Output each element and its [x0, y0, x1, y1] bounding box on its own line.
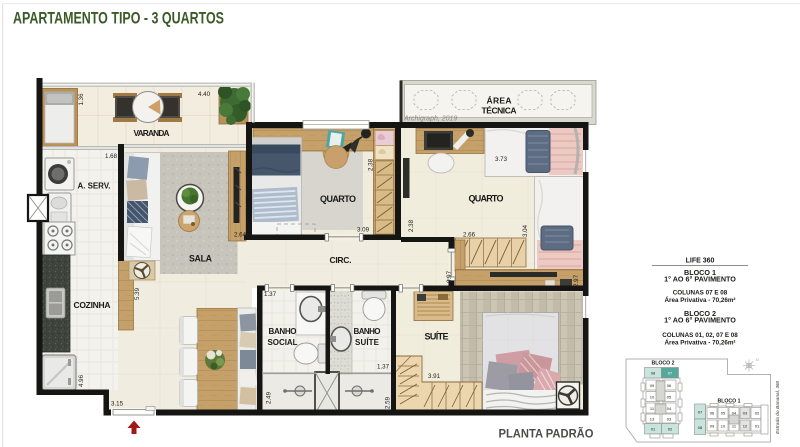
- svg-text:06: 06: [710, 411, 715, 416]
- svg-text:04: 04: [732, 411, 737, 416]
- svg-text:3.73: 3.73: [495, 156, 508, 163]
- svg-text:08: 08: [698, 425, 703, 430]
- svg-text:07: 07: [668, 371, 673, 376]
- svg-text:SUÍTE: SUÍTE: [425, 332, 449, 342]
- svg-text:N: N: [756, 358, 759, 362]
- svg-text:LIFE 360: LIFE 360: [686, 258, 715, 265]
- svg-text:3.15: 3.15: [111, 401, 124, 408]
- svg-text:01: 01: [651, 427, 656, 432]
- svg-text:13: 13: [650, 417, 655, 422]
- svg-text:5.39: 5.39: [134, 287, 141, 300]
- svg-text:2.64: 2.64: [234, 232, 247, 239]
- svg-text:1° AO 6° PAVIMENTO: 1° AO 6° PAVIMENTO: [664, 316, 736, 325]
- svg-text:04: 04: [667, 406, 672, 411]
- svg-text:SALA: SALA: [189, 254, 213, 264]
- svg-text:2.49: 2.49: [266, 391, 273, 404]
- svg-text:QUARTO: QUARTO: [469, 194, 504, 204]
- svg-text:ÁREA: ÁREA: [487, 96, 512, 106]
- svg-text:PLANTA PADRÃO: PLANTA PADRÃO: [499, 427, 594, 441]
- svg-text:Archigraph, 2019: Archigraph, 2019: [403, 116, 457, 123]
- svg-text:12: 12: [743, 424, 748, 429]
- svg-text:2.38: 2.38: [408, 219, 415, 232]
- svg-text:1.37: 1.37: [377, 364, 390, 371]
- svg-text:VARANDA: VARANDA: [134, 128, 170, 138]
- svg-text:COLUNAS 01, 02, 07 E 08: COLUNAS 01, 02, 07 E 08: [662, 332, 738, 339]
- svg-text:A. SERV.: A. SERV.: [78, 182, 111, 191]
- svg-text:2.97: 2.97: [573, 274, 580, 287]
- svg-text:COZINHA: COZINHA: [74, 300, 111, 310]
- svg-text:4.40: 4.40: [198, 91, 211, 98]
- svg-text:01: 01: [755, 424, 760, 429]
- svg-text:1.68: 1.68: [105, 153, 118, 160]
- svg-text:03: 03: [667, 417, 672, 422]
- svg-text:Área Privativa - 70,26m²: Área Privativa - 70,26m²: [664, 295, 735, 304]
- svg-text:2.38: 2.38: [368, 158, 375, 171]
- svg-text:QUARTO: QUARTO: [320, 194, 356, 204]
- svg-text:1.37: 1.37: [264, 291, 277, 298]
- svg-text:Estrada do Bananal, 360: Estrada do Bananal, 360: [775, 380, 780, 434]
- svg-text:Área Privativa - 70,26m²: Área Privativa - 70,26m²: [664, 338, 735, 347]
- svg-text:4.96: 4.96: [78, 374, 85, 387]
- svg-text:10: 10: [721, 424, 726, 429]
- svg-text:SOCIAL: SOCIAL: [268, 338, 298, 347]
- svg-text:2.59: 2.59: [385, 396, 392, 409]
- svg-text:09: 09: [710, 424, 715, 429]
- svg-text:03: 03: [743, 411, 748, 416]
- svg-text:BANHO: BANHO: [269, 327, 297, 336]
- svg-text:07: 07: [698, 410, 703, 415]
- svg-text:APARTAMENTO TIPO - 3 QUARTOS: APARTAMENTO TIPO - 3 QUARTOS: [13, 10, 224, 28]
- svg-text:05: 05: [667, 395, 672, 400]
- svg-text:02: 02: [755, 411, 760, 416]
- svg-text:08: 08: [651, 371, 656, 376]
- svg-text:05: 05: [721, 411, 726, 416]
- svg-text:0.97: 0.97: [446, 270, 453, 283]
- svg-text:06: 06: [667, 383, 672, 388]
- svg-text:1.36: 1.36: [78, 93, 85, 106]
- svg-text:3.04: 3.04: [522, 224, 529, 237]
- svg-text:TÉCNICA: TÉCNICA: [482, 106, 517, 116]
- svg-text:02: 02: [668, 427, 673, 432]
- svg-text:3.91: 3.91: [428, 373, 441, 380]
- svg-text:CIRC.: CIRC.: [330, 255, 352, 265]
- svg-text:BANHO: BANHO: [354, 327, 381, 336]
- svg-text:10: 10: [650, 395, 655, 400]
- svg-text:COLUNAS 07 E 08: COLUNAS 07 E 08: [673, 290, 728, 297]
- svg-text:SUÍTE: SUÍTE: [355, 338, 380, 347]
- svg-text:3.09: 3.09: [357, 227, 370, 234]
- svg-text:BLOCO 2: BLOCO 2: [651, 361, 674, 367]
- svg-text:1° AO 6° PAVIMENTO: 1° AO 6° PAVIMENTO: [664, 275, 736, 284]
- svg-text:09: 09: [650, 383, 655, 388]
- svg-text:2.66: 2.66: [463, 232, 476, 239]
